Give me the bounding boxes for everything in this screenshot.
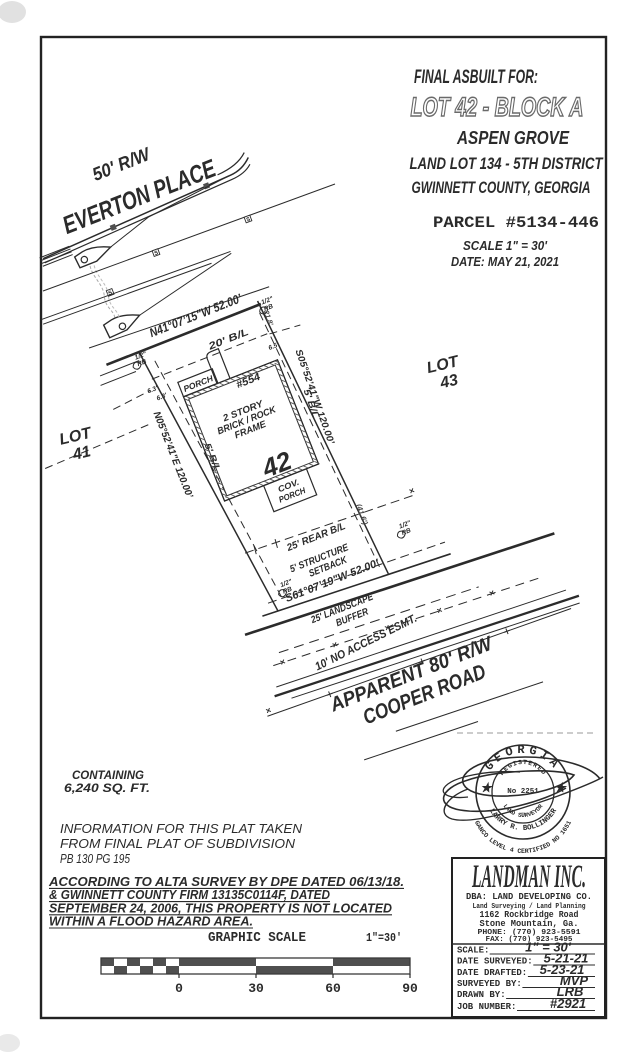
svg-text:50' R/W: 50' R/W [89,143,154,185]
svg-text:6.3': 6.3' [156,392,169,403]
svg-text:10' NO ACCESS ESMT.: 10' NO ACCESS ESMT. [313,613,419,674]
svg-text:CONTAINING: CONTAINING [72,768,144,782]
svg-text:INFORMATION FOR THIS PLAT TAKE: INFORMATION FOR THIS PLAT TAKEN [60,821,303,836]
svg-text:LANDMAN INC.: LANDMAN INC. [472,859,586,895]
svg-text:SEPTEMBER 24, 2006, THIS PROPE: SEPTEMBER 24, 2006, THIS PROPERTY IS NOT… [49,901,392,915]
svg-text:GWINNETT COUNTY, GEORGIA: GWINNETT COUNTY, GEORGIA [412,178,591,197]
svg-text:LOT 42 - BLOCK A: LOT 42 - BLOCK A [411,92,584,122]
svg-text:42: 42 [257,445,296,484]
svg-text:JOB NUMBER:: JOB NUMBER: [457,1002,516,1012]
svg-text:SCALE:: SCALE: [457,946,489,956]
svg-text:GANCO LEVEL 4 CERTIFIED NO 165: GANCO LEVEL 4 CERTIFIED NO 1651 [473,820,573,855]
svg-text:1"=30': 1"=30' [366,931,402,945]
svg-text:×: × [436,606,445,617]
svg-text:41: 41 [70,443,92,464]
svg-text:DRAWN BY:: DRAWN BY: [457,990,506,1000]
svg-text:6,240 SQ. FT.: 6,240 SQ. FT. [64,781,150,795]
svg-text:#2921: #2921 [550,996,586,1011]
svg-text:PB 130 PG 195: PB 130 PG 195 [60,851,131,866]
svg-text:FINAL ASBUILT FOR:: FINAL ASBUILT FOR: [414,67,538,88]
svg-text:DATE: MAY 21, 2021: DATE: MAY 21, 2021 [451,254,559,269]
svg-text:SURVEYED BY:: SURVEYED BY: [457,979,522,989]
svg-text:& GWINNETT COUNTY FIRM 13135C0: & GWINNETT COUNTY FIRM 13135C0114F, DATE… [49,888,330,902]
svg-text:#554: #554 [234,371,262,391]
svg-text:×: × [279,657,288,668]
svg-text:90: 90 [402,981,418,996]
svg-text:30: 30 [248,981,264,996]
svg-text:DATE DRAFTED:: DATE DRAFTED: [457,968,527,978]
svg-text:LAND LOT 134 - 5TH DISTRICT: LAND LOT 134 - 5TH DISTRICT [410,154,604,173]
svg-text:60: 60 [325,981,341,996]
svg-text:SCALE 1" = 30': SCALE 1" = 30' [463,238,548,253]
svg-text:×: × [408,486,417,497]
svg-text:WITHIN A FLOOD HAZARD AREA.: WITHIN A FLOOD HAZARD AREA. [49,915,253,929]
svg-text:DBA: LAND DEVELOPING CO.: DBA: LAND DEVELOPING CO. [466,891,592,902]
svg-text:DATE SURVEYED:: DATE SURVEYED: [457,957,533,967]
svg-text:Stone Mountain, Ga.: Stone Mountain, Ga. [480,918,579,929]
svg-text:×: × [264,706,273,717]
svg-text:ACCORDING TO ALTA SURVEY BY DP: ACCORDING TO ALTA SURVEY BY DPE DATED 06… [48,875,404,889]
svg-text:5' B/L: 5' B/L [203,442,223,474]
svg-text:PARCEL #5134-446: PARCEL #5134-446 [433,214,599,232]
svg-text:0: 0 [175,981,183,996]
svg-text:GRAPHIC SCALE: GRAPHIC SCALE [208,931,306,946]
svg-text:×: × [488,588,497,599]
svg-text:ASPEN GROVE: ASPEN GROVE [456,128,570,148]
svg-text:FROM FINAL PLAT OF SUBDIVISION: FROM FINAL PLAT OF SUBDIVISION [60,836,296,851]
svg-text:43: 43 [438,372,460,393]
